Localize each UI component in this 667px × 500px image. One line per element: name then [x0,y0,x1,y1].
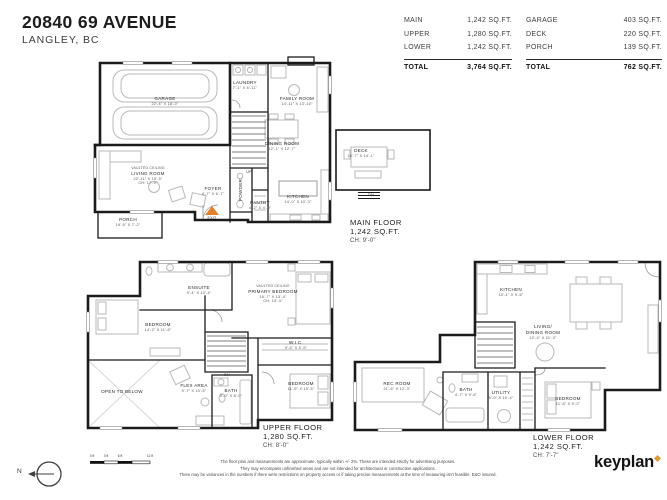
keyplan-wordmark: keyplan [594,453,654,472]
scale-tick: 6 ft [118,454,122,458]
scale-tick: 12 ft [147,454,153,458]
north-arrow-icon [24,459,66,489]
keyplan-logo: keyplan [594,453,660,472]
scale-tick: 0 ft [90,454,94,458]
floorplan-page: 20840 69 AVENUE LANGLEY, BC MAIN 1,242 S… [0,0,667,500]
room-label-bedroom: BEDROOM 11'-8" X 9'-2" [555,396,581,407]
room-label-kitchen: KITCHEN 10'-1" X 9'-6" [499,287,524,298]
lower-floor-title: LOWER FLOOR 1,242 SQ.FT. CH: 7'-7" [533,433,594,460]
room-label-utility: UTILITY 5'-0" X 10'-4" [489,390,514,401]
scale-tick: 3 ft [104,454,108,458]
keyplan-diamond-icon [654,455,661,462]
lower-floor-plan: KITCHEN 10'-1" X 9'-6" LIVING/ DINING RO… [0,0,667,500]
disclaimer: The floor plan and measurements are appr… [138,459,538,479]
room-label-rec-room: REC ROOM 21'-6" X 12'-3" [383,381,410,392]
room-label-living-dining: LIVING/ DINING ROOM 12'-4" X 21'-3" [526,324,560,341]
dining-furniture [536,277,658,361]
north-label: N [17,468,22,475]
room-label-bath: BATH 4'-7" X 9'-6" [455,387,477,398]
stairs [477,327,513,363]
closet-louvers [522,378,533,420]
bath-fixtures [446,374,484,422]
